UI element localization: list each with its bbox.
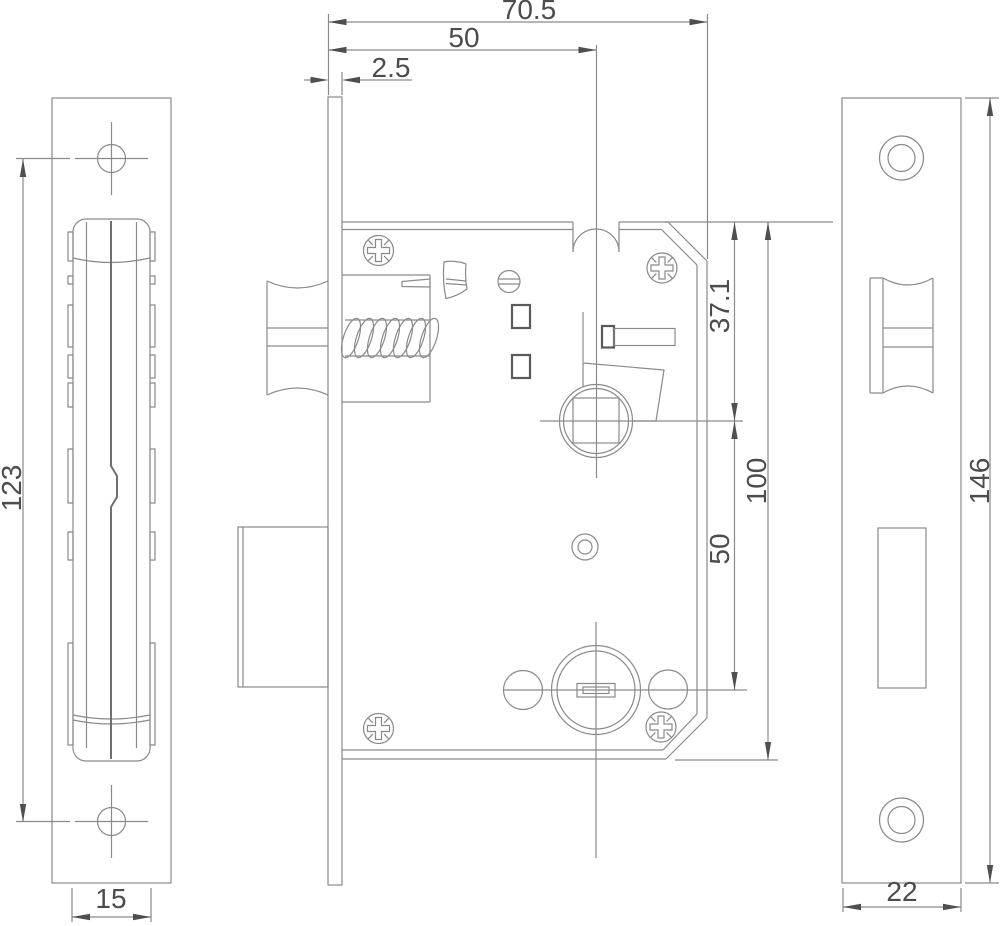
- faceplate-edge: [328, 97, 342, 885]
- latch-spring-housing: [338, 275, 443, 402]
- dim-plate-width: 22: [843, 876, 961, 912]
- dim-latch-channel-width: 15: [72, 883, 151, 922]
- roller-bolt-side: [267, 281, 328, 395]
- deadbolt-side: [238, 527, 328, 687]
- dim-spindle-to-cylinder-label: 50: [704, 533, 735, 564]
- latch-head-cam: [444, 261, 467, 298]
- latch-push-rod: [402, 279, 430, 287]
- latch-center-seam: [111, 221, 117, 759]
- back-plate-bottom-screw-hole: [880, 798, 924, 842]
- dim-latch-channel-width-label: 15: [95, 883, 126, 914]
- dim-body-height-label: 100: [741, 458, 772, 505]
- dim-faceplate-thickness: 2.5: [304, 52, 412, 95]
- dim-plate-height: 146: [964, 98, 999, 883]
- dim-faceplate-thickness-label: 2.5: [372, 52, 411, 83]
- dim-backset: 50: [329, 22, 597, 53]
- coil-spring: [338, 316, 443, 360]
- roller-bolt-front: [870, 278, 933, 393]
- deadbolt-slot: [878, 528, 926, 688]
- case-screw-bottom-left: [364, 714, 394, 744]
- dim-top-to-spindle-label: 37.1: [704, 279, 735, 334]
- dim-backset-label: 50: [448, 22, 479, 53]
- dim-top-to-spindle: 37.1: [704, 222, 738, 421]
- front-plate-outline: [52, 98, 171, 883]
- centerlines: [503, 45, 747, 858]
- mortise-lock-drawing: 123 15: [0, 0, 1000, 926]
- dim-body-height: 100: [741, 222, 772, 760]
- case-screw-top-left: [364, 236, 394, 266]
- square-stud-lower: [512, 355, 530, 378]
- case-screw-bottom-right: [646, 712, 676, 742]
- front-plate-top-screw-hole: [75, 122, 148, 195]
- view-front-faceplate: 123 15: [0, 98, 171, 922]
- dim-plate-height-label: 146: [964, 458, 995, 505]
- back-plate-outline: [842, 98, 961, 883]
- slotted-screw: [498, 271, 520, 293]
- front-plate-bottom-screw-hole: [75, 785, 148, 858]
- dim-total-depth-label: 70.5: [502, 0, 557, 25]
- back-plate-top-screw-hole: [880, 136, 924, 180]
- technical-drawing-page: 123 15: [0, 0, 1000, 926]
- dim-screw-hole-spacing-label: 123: [0, 465, 27, 512]
- dim-screw-hole-spacing: 123: [0, 159, 70, 823]
- view-lock-body: 70.5 50 2.5 37.1 50: [238, 0, 833, 885]
- dim-plate-width-label: 22: [886, 876, 917, 907]
- case-screw-top-right: [647, 253, 677, 283]
- dim-total-depth: 70.5: [329, 0, 708, 259]
- spindle-follower: [560, 363, 665, 458]
- square-stud-upper: [512, 305, 530, 328]
- pivot-pin: [572, 534, 598, 560]
- dim-spindle-to-cylinder: 50: [704, 421, 738, 690]
- view-back-plate: 146 22: [842, 98, 999, 912]
- latch-channel-front: [68, 219, 155, 761]
